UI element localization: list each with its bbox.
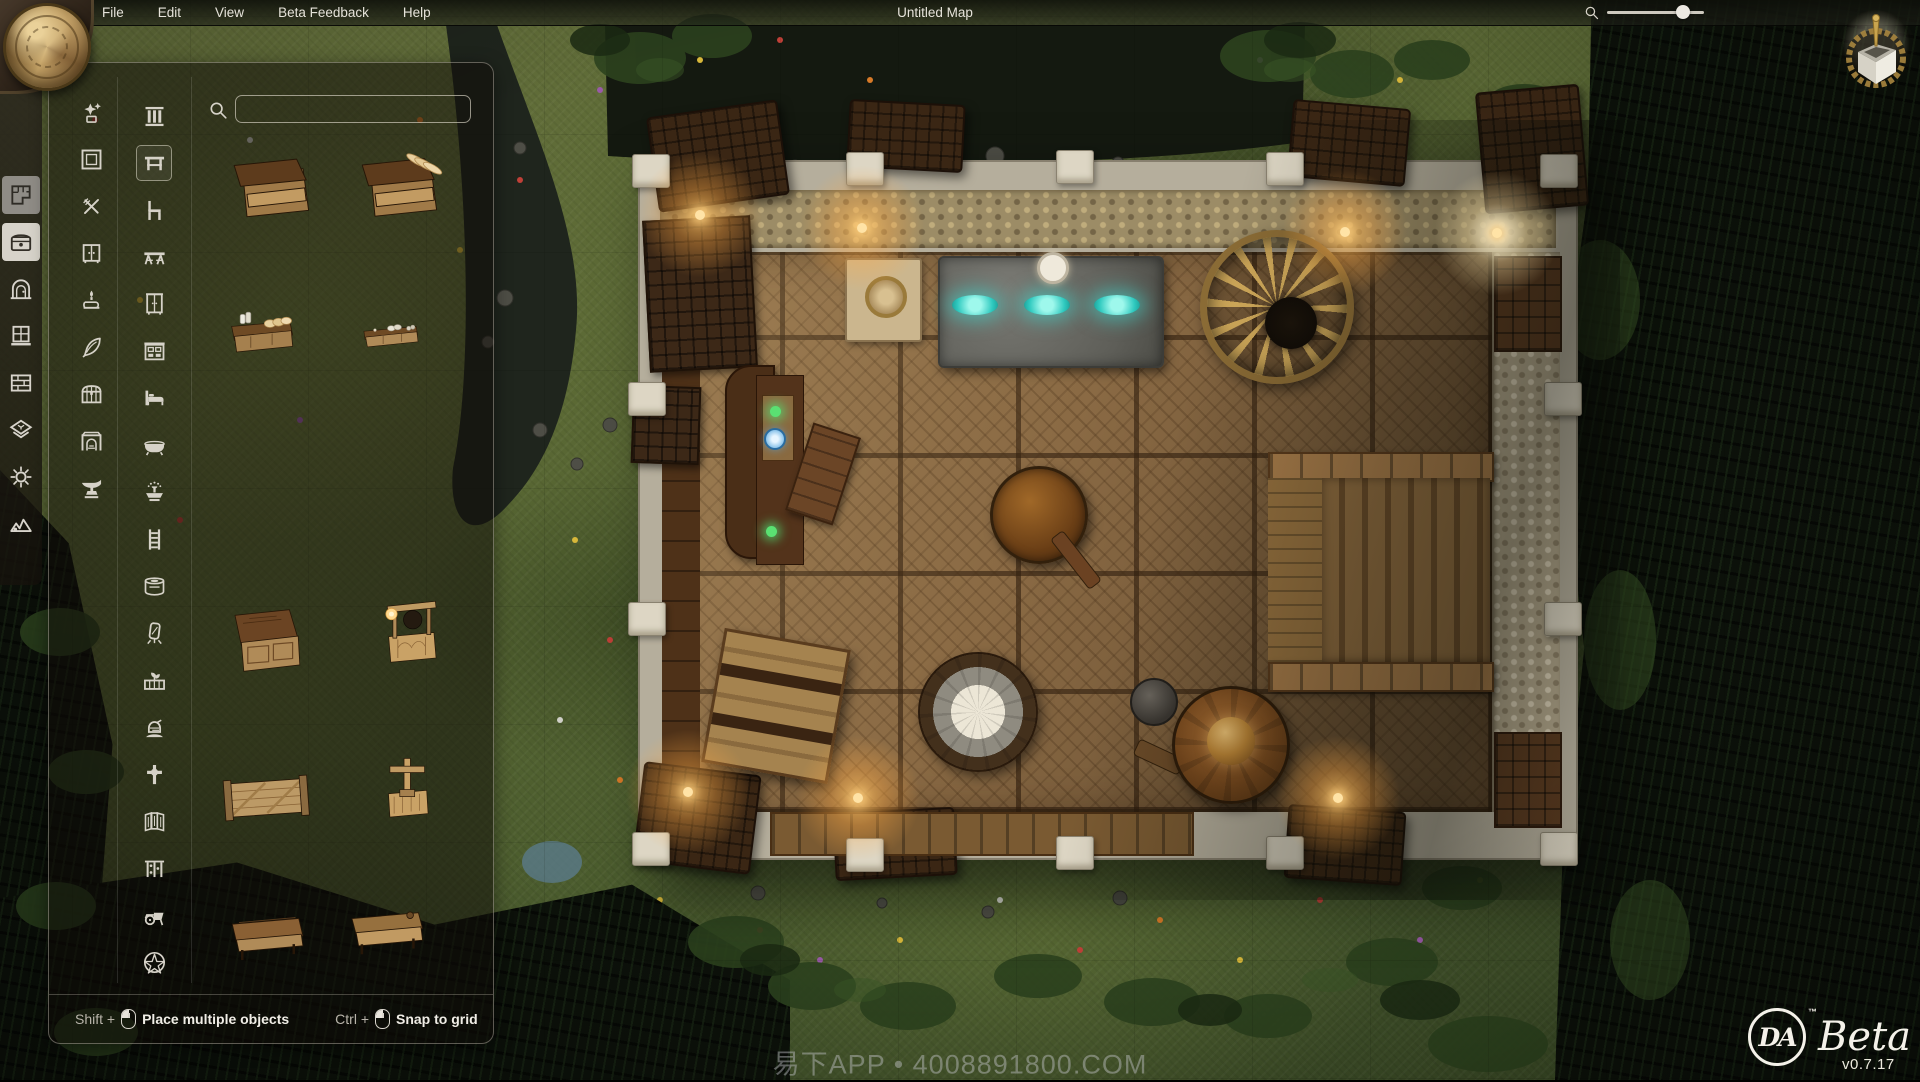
wall-stone-block bbox=[628, 382, 666, 416]
object-thumb-lantern-stand[interactable] bbox=[366, 581, 458, 691]
cyan-flame bbox=[1024, 295, 1070, 315]
map-title: Untitled Map bbox=[897, 5, 973, 20]
wall-stone-block bbox=[1540, 154, 1578, 188]
hint-place-multiple-objects: Shift +Place multiple objects bbox=[75, 1009, 289, 1029]
category-folding-screen-icon[interactable] bbox=[137, 804, 171, 838]
panel-divider bbox=[117, 77, 118, 983]
round-table[interactable] bbox=[918, 652, 1038, 772]
category-planter-icon[interactable] bbox=[137, 663, 171, 697]
stair-railing bbox=[1268, 662, 1494, 692]
outdoor-bench[interactable] bbox=[1287, 99, 1411, 187]
top-menu-bar: FileEditViewBeta FeedbackHelp Untitled M… bbox=[0, 0, 1920, 26]
search-input[interactable] bbox=[235, 95, 471, 123]
object-thumb-stall-table-bread[interactable] bbox=[351, 136, 455, 234]
hint-key-label: Shift + bbox=[75, 1011, 115, 1027]
category-new-icon[interactable] bbox=[74, 95, 108, 129]
cyan-flame bbox=[1094, 295, 1140, 315]
object-thumb-cross-post[interactable] bbox=[363, 729, 455, 843]
da-logo: DA ™ bbox=[1748, 1008, 1806, 1066]
menu-item-view[interactable]: View bbox=[215, 5, 244, 20]
cobblestone-band bbox=[660, 190, 1556, 248]
zoom-slider-knob[interactable] bbox=[1676, 5, 1690, 19]
category-bathtub-icon[interactable] bbox=[137, 428, 171, 462]
view-3d-toggle[interactable] bbox=[1836, 10, 1916, 90]
tool-doors[interactable] bbox=[2, 270, 40, 308]
staircase[interactable] bbox=[1322, 478, 1490, 662]
category-bed-icon[interactable] bbox=[137, 381, 171, 415]
beta-badge: DA ™ Beta v0.7.17 bbox=[1748, 1008, 1911, 1066]
category-column-1 bbox=[74, 95, 108, 505]
zoom-search-icon bbox=[1583, 4, 1600, 21]
category-trellis-icon[interactable] bbox=[137, 851, 171, 885]
tool-windows[interactable] bbox=[2, 317, 40, 355]
tool-lights[interactable] bbox=[2, 458, 40, 496]
category-long-table-icon[interactable] bbox=[137, 240, 171, 274]
object-thumb-wooden-gate[interactable] bbox=[213, 746, 331, 838]
category-fireplace-icon[interactable] bbox=[74, 424, 108, 458]
hint-action-label: Place multiple objects bbox=[142, 1011, 289, 1027]
category-pentagram-icon[interactable] bbox=[137, 945, 171, 979]
object-thumb-counter-pastry[interactable] bbox=[341, 301, 445, 365]
panel-divider bbox=[191, 77, 192, 983]
potion-glow bbox=[766, 526, 777, 537]
category-armor-icon[interactable] bbox=[137, 710, 171, 744]
wall-stone-block bbox=[1056, 836, 1094, 870]
bottom-bench[interactable] bbox=[770, 812, 1194, 856]
wall-stone-block bbox=[1266, 152, 1304, 186]
forest-right bbox=[1555, 0, 1920, 1080]
wall-stone-block bbox=[1544, 602, 1582, 636]
wall-stone-block bbox=[1544, 382, 1582, 416]
beta-label: Beta bbox=[1818, 1017, 1911, 1057]
outdoor-bench[interactable] bbox=[1475, 84, 1589, 215]
tool-rooms[interactable] bbox=[2, 176, 40, 214]
mouse-icon bbox=[375, 1009, 390, 1029]
category-frame-icon[interactable] bbox=[74, 142, 108, 176]
tool-floors[interactable] bbox=[2, 411, 40, 449]
hint-key-label: Ctrl + bbox=[335, 1011, 369, 1027]
wall-stone-block bbox=[846, 152, 884, 186]
search-icon bbox=[207, 99, 229, 121]
hint-snap-to-grid: Ctrl +Snap to grid bbox=[335, 1009, 478, 1029]
mouse-icon bbox=[121, 1009, 136, 1029]
category-stove-icon[interactable] bbox=[137, 569, 171, 603]
tool-objects[interactable] bbox=[2, 223, 40, 261]
menu-item-beta-feedback[interactable]: Beta Feedback bbox=[278, 5, 369, 20]
cube-3d-icon bbox=[1836, 10, 1916, 90]
category-table-icon[interactable] bbox=[137, 146, 171, 180]
object-thumb-wooden-cabinet[interactable] bbox=[219, 586, 323, 691]
object-thumb-workbench-shelf[interactable] bbox=[337, 889, 445, 983]
object-thumb-workbench[interactable] bbox=[219, 894, 327, 986]
cyan-flame bbox=[952, 295, 998, 315]
category-ladder-icon[interactable] bbox=[137, 522, 171, 556]
stair-landing bbox=[1268, 478, 1322, 662]
door-bottom-right[interactable] bbox=[1494, 732, 1562, 828]
mode-toolbar bbox=[0, 85, 42, 585]
app-logo-corner bbox=[0, 0, 96, 96]
category-mirror-icon[interactable] bbox=[137, 616, 171, 650]
object-panel: Shift +Place multiple objectsCtrl +Snap … bbox=[48, 62, 494, 1044]
category-fountain-icon[interactable] bbox=[137, 475, 171, 509]
category-candle-icon[interactable] bbox=[74, 283, 108, 317]
category-chair-icon[interactable] bbox=[137, 193, 171, 227]
metal-brazier[interactable] bbox=[1200, 230, 1354, 384]
menu-item-edit[interactable]: Edit bbox=[158, 5, 181, 20]
version-label: v0.7.17 bbox=[1842, 1056, 1895, 1073]
category-grave-cross-icon[interactable] bbox=[137, 757, 171, 791]
wall-stone-block bbox=[1540, 832, 1578, 866]
wall-stone-block bbox=[628, 602, 666, 636]
wall-stone-block bbox=[846, 838, 884, 872]
category-column-2 bbox=[137, 99, 171, 979]
wall-stone-block bbox=[1056, 150, 1094, 184]
menu-item-file[interactable]: File bbox=[102, 5, 124, 20]
category-pillars-icon[interactable] bbox=[137, 99, 171, 133]
category-hutch-icon[interactable] bbox=[137, 334, 171, 368]
watermark: 易下APP • 4008891800.COM bbox=[773, 1043, 1148, 1082]
tool-walls[interactable] bbox=[2, 364, 40, 402]
cooking-pot[interactable] bbox=[1130, 678, 1178, 726]
wall-stone-block bbox=[632, 154, 670, 188]
category-cart-icon[interactable] bbox=[137, 898, 171, 932]
wall-stone-block bbox=[632, 832, 670, 866]
wall-stone-block bbox=[1266, 836, 1304, 870]
tool-terrain[interactable] bbox=[2, 505, 40, 543]
object-thumb-stall-table[interactable] bbox=[223, 138, 327, 233]
corner-frame bbox=[642, 215, 758, 372]
category-chest-icon[interactable] bbox=[74, 377, 108, 411]
stone-hearth[interactable] bbox=[938, 256, 1164, 368]
white-mug bbox=[1037, 252, 1069, 284]
category-armoire-icon[interactable] bbox=[137, 287, 171, 321]
category-quill-icon[interactable] bbox=[74, 330, 108, 364]
blue-bowl bbox=[764, 428, 786, 450]
category-cabinet-icon[interactable] bbox=[74, 236, 108, 270]
menu-item-help[interactable]: Help bbox=[403, 5, 431, 20]
door-top-right[interactable] bbox=[1494, 256, 1562, 352]
shrine-painting[interactable] bbox=[845, 258, 922, 342]
category-anvil-icon[interactable] bbox=[74, 471, 108, 505]
hint-action-label: Snap to grid bbox=[396, 1011, 478, 1027]
object-thumb-counter-dairy[interactable] bbox=[213, 291, 317, 369]
panel-footer: Shift +Place multiple objectsCtrl +Snap … bbox=[49, 994, 493, 1043]
category-utensils-icon[interactable] bbox=[74, 189, 108, 223]
building bbox=[638, 160, 1578, 860]
potion-glow bbox=[770, 406, 781, 417]
copper-boiler[interactable] bbox=[1172, 686, 1290, 804]
gold-medallion-logo bbox=[3, 3, 91, 91]
trademark: ™ bbox=[1808, 1007, 1815, 1017]
leaning-pallet[interactable] bbox=[701, 628, 851, 784]
